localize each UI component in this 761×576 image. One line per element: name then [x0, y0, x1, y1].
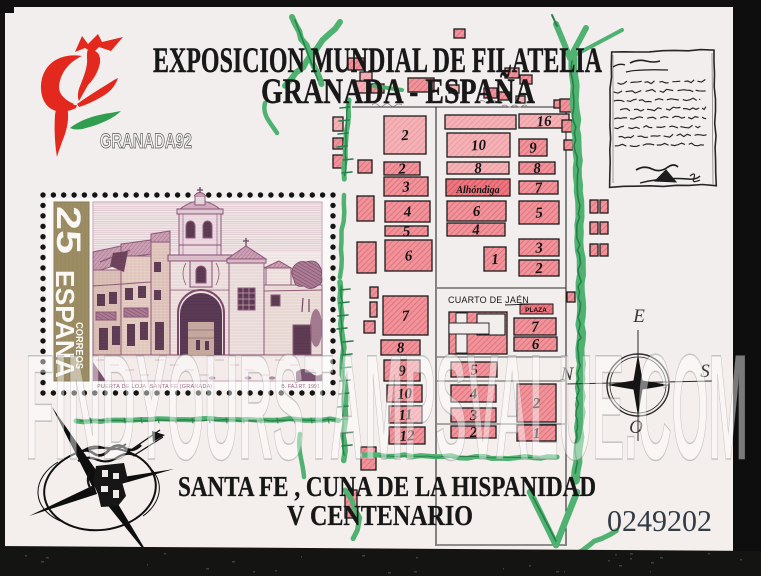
svg-text:CUARTO DE JAÉN: CUARTO DE JAÉN [448, 295, 529, 305]
svg-text:V CENTENARIO: V CENTENARIO [287, 501, 473, 532]
svg-text:3: 3 [534, 240, 544, 257]
svg-text:3: 3 [401, 179, 411, 196]
svg-text:PLAZA: PLAZA [525, 307, 547, 314]
svg-text:16: 16 [536, 113, 553, 130]
svg-text:FINDYOURSTAMPSVALUE.COM: FINDYOURSTAMPSVALUE.COM [25, 323, 748, 491]
svg-text:2: 2 [400, 128, 410, 145]
svg-text:4: 4 [402, 204, 412, 221]
svg-text:2: 2 [534, 261, 544, 278]
svg-text:1: 1 [491, 252, 500, 268]
svg-text:GRANADA - ESPAÑA: GRANADA - ESPAÑA [261, 71, 535, 111]
svg-text:25: 25 [49, 206, 87, 254]
svg-text:10: 10 [471, 137, 488, 154]
svg-text:4: 4 [471, 222, 481, 239]
svg-text:GRANADA92: GRANADA92 [100, 130, 192, 153]
svg-text:Alhóndiga: Alhóndiga [455, 185, 499, 196]
svg-text:0249202: 0249202 [607, 503, 712, 538]
svg-text:2: 2 [397, 161, 407, 178]
